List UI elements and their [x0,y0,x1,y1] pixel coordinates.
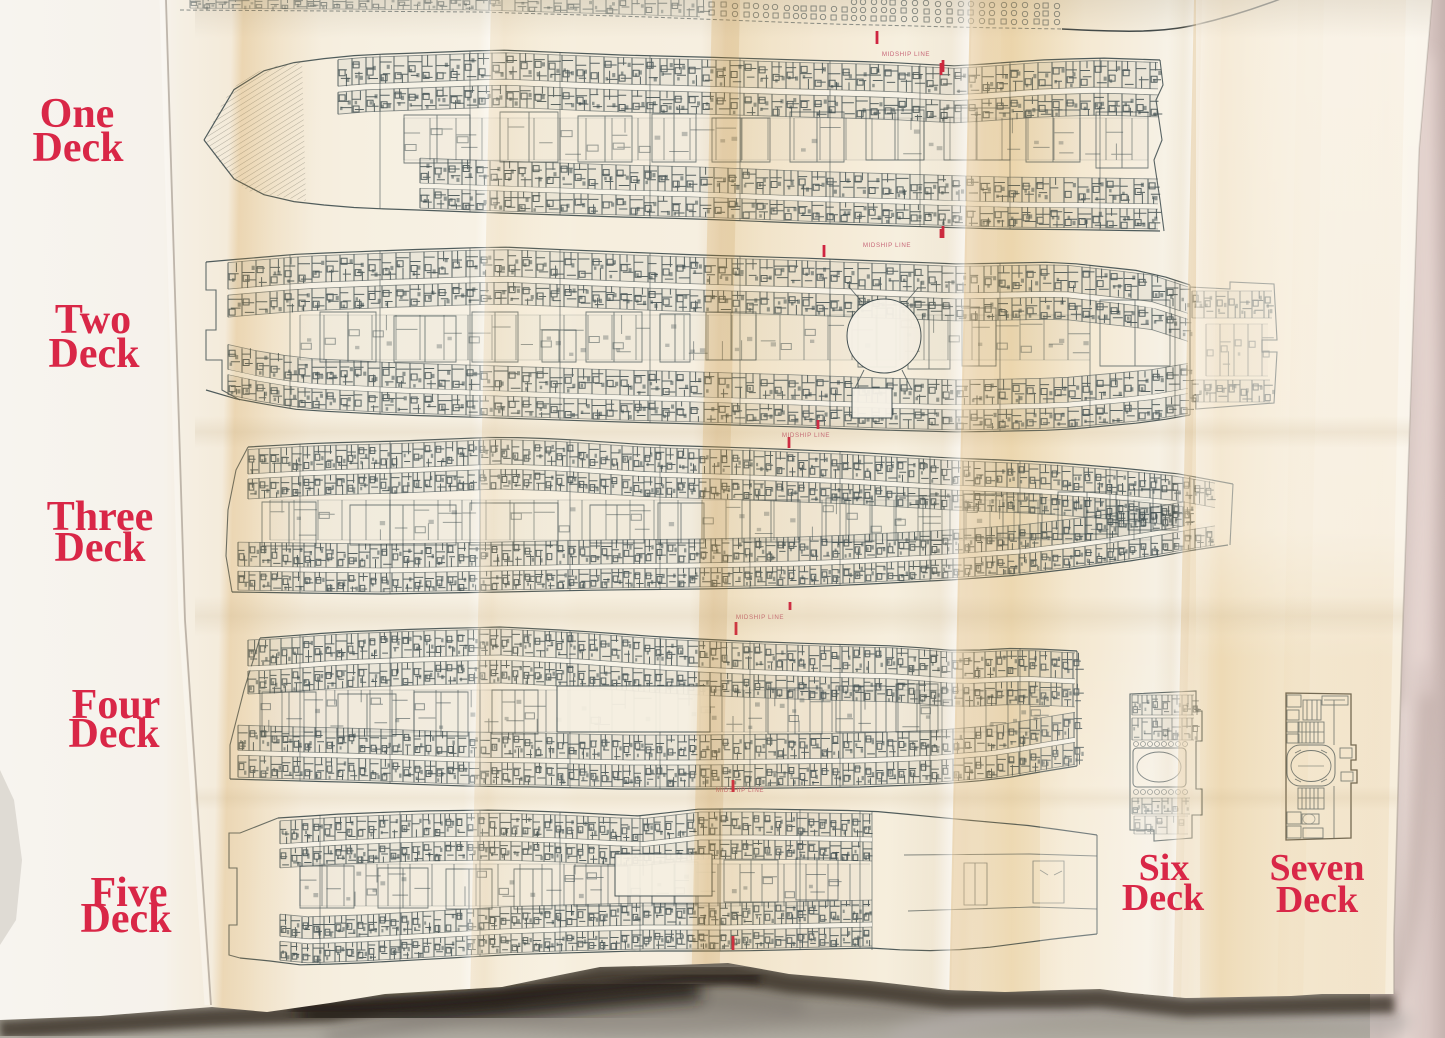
svg-text:Deck: Deck [33,125,125,171]
svg-text:Deck: Deck [1276,879,1359,921]
svg-text:Deck: Deck [1122,877,1205,919]
svg-text:Deck: Deck [49,331,141,377]
svg-text:Deck: Deck [69,711,161,757]
svg-text:Deck: Deck [81,896,173,942]
svg-text:Deck: Deck [55,525,147,571]
